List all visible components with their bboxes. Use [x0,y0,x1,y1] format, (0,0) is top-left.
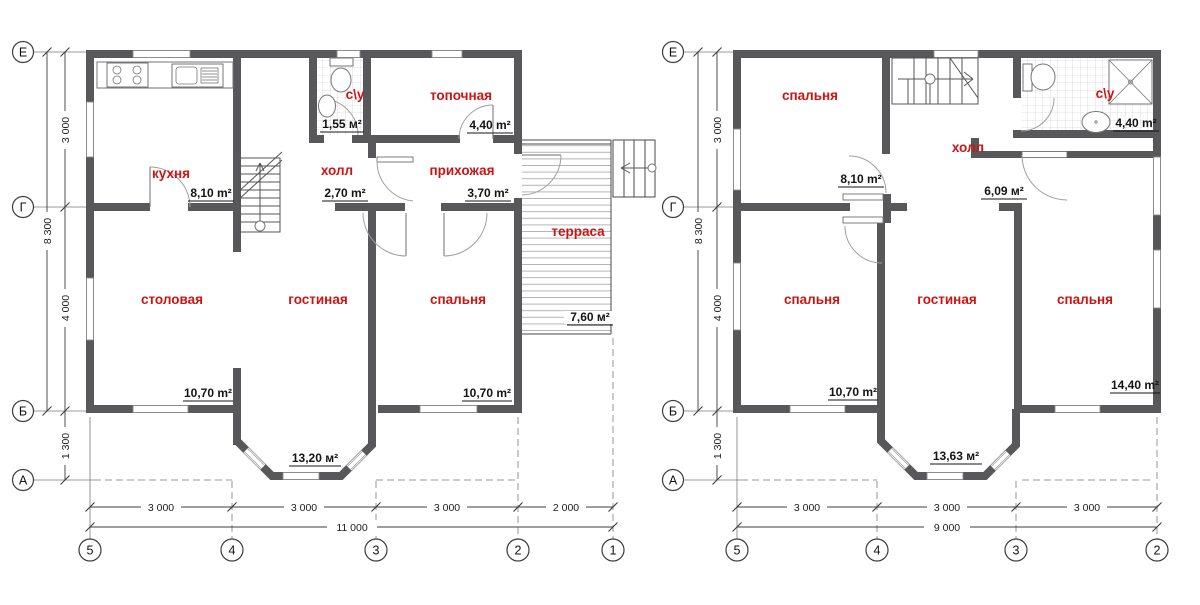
washbasin-icon [319,95,336,117]
axis-row-A: А [19,474,28,488]
area-label-wc: 1,55 м² [322,117,362,131]
area-label-bedroom: 10,70 m² [463,386,511,400]
floor2-plan: 3 000 3 000 3 000 9 000 3 000 4 000 1 30… [663,42,1169,562]
dim-floor1-h2: 4 000 [60,295,72,321]
room-label-wc: с\у [346,87,365,102]
dim-floor1-h3: 1 300 [60,433,72,459]
stove-icon [107,63,148,87]
axis-col-4: 4 [229,544,236,558]
plan-drawing: 3 000 3 000 3 000 2 000 11 000 3 000 4 0… [0,0,1200,600]
axis-row-B: Б [19,405,27,419]
floor-plan-sheet: 3 000 3 000 3 000 2 000 11 000 3 000 4 0… [0,0,1200,600]
dim-floor1-w1: 3 000 [148,502,174,514]
area-label-bedroom2: 10,70 m² [829,385,877,399]
dim-floor2-w1: 3 000 [794,502,820,514]
stairs-icon-floor2 [892,58,978,104]
dim-floor2-wtotal: 9 000 [934,522,960,534]
stairs-icon-floor1 [238,152,282,232]
area-label-wc2: 4,40 m² [1115,116,1156,130]
room-label-bedroom1: спальня [782,88,838,103]
area-label-bedroom1: 8,10 m² [840,172,881,186]
area-label-dining: 10,70 m² [184,386,232,400]
room-label-bedroom2: спальня [784,292,840,307]
dim-floor1-w4: 2 000 [553,502,579,514]
room-label-bedroom3: спальня [1057,292,1113,307]
dim-floor2-h1: 3 000 [712,117,724,143]
room-label-wc2: с\у [1096,86,1115,101]
axis-col-3: 3 [373,544,380,558]
room-label-hall: холл [321,163,353,178]
dim-floor2-htotal: 8 300 [693,218,705,244]
dim-floor2-w3: 3 000 [1074,502,1100,514]
area-label-hall: 2,70 m² [324,186,365,200]
washbasin-icon-2 [1082,112,1110,133]
area-label-living2: 13,63 м² [933,449,979,463]
dim-floor1-htotal: 8 300 [42,218,54,244]
dim-floor1-h1: 3 000 [60,117,72,143]
axis-row-A2: А [669,474,678,488]
dim-floor1-wtotal: 11 000 [336,522,367,534]
axis-row-G: Г [20,201,27,215]
area-label-terrace: 7,60 м² [570,310,610,324]
area-label-hall2: 6,09 м² [984,184,1024,198]
kitchen-fixtures [97,62,233,88]
room-label-terrace: терраса [551,224,605,239]
axis-col-2: 2 [515,544,522,558]
room-label-living: гостиная [288,292,347,307]
axis-col-5: 5 [87,544,94,558]
room-label-bedroom: спальня [430,292,486,307]
floor1-plan: 3 000 3 000 3 000 2 000 11 000 3 000 4 0… [13,42,657,562]
axis-row-B2: Б [669,405,677,419]
floor1-windows [87,51,523,480]
dim-floor2-w2: 3 000 [934,502,960,514]
dim-floor2-h3: 1 300 [712,433,724,459]
toilet-icon-2 [1023,64,1055,91]
axis-col-1: 1 [610,544,617,558]
room-label-boiler: топочная [430,88,492,103]
dim-floor2-h2: 4 000 [712,295,724,321]
axis-col2-3: 3 [1013,544,1020,558]
terrace-steps [613,140,656,197]
axis-col2-5: 5 [734,544,741,558]
axis-row-G2: Г [670,201,677,215]
axis-row-E: Е [19,46,27,60]
shower-icon [1109,60,1152,104]
dim-floor1-w2: 3 000 [291,502,317,514]
axis-col2-4: 4 [874,544,881,558]
room-label-living2: гостиная [917,292,976,307]
area-label-living: 13,20 м² [292,451,338,465]
sink-icon [172,64,223,87]
axis-col2-2: 2 [1154,544,1161,558]
axis-row-E2: Е [669,46,677,60]
area-label-entry: 3,70 m² [467,186,508,200]
area-label-bedroom3: 14,40 m² [1111,378,1159,392]
area-label-boiler: 4,40 m² [469,118,510,132]
room-label-hall2: холл [952,140,984,155]
area-label-kitchen: 8,10 m² [190,186,231,200]
room-label-dining: столовая [141,292,203,307]
room-label-kitchen: кухня [152,166,190,181]
room-label-entry: прихожая [429,163,494,178]
dim-floor1-w3: 3 000 [434,502,460,514]
